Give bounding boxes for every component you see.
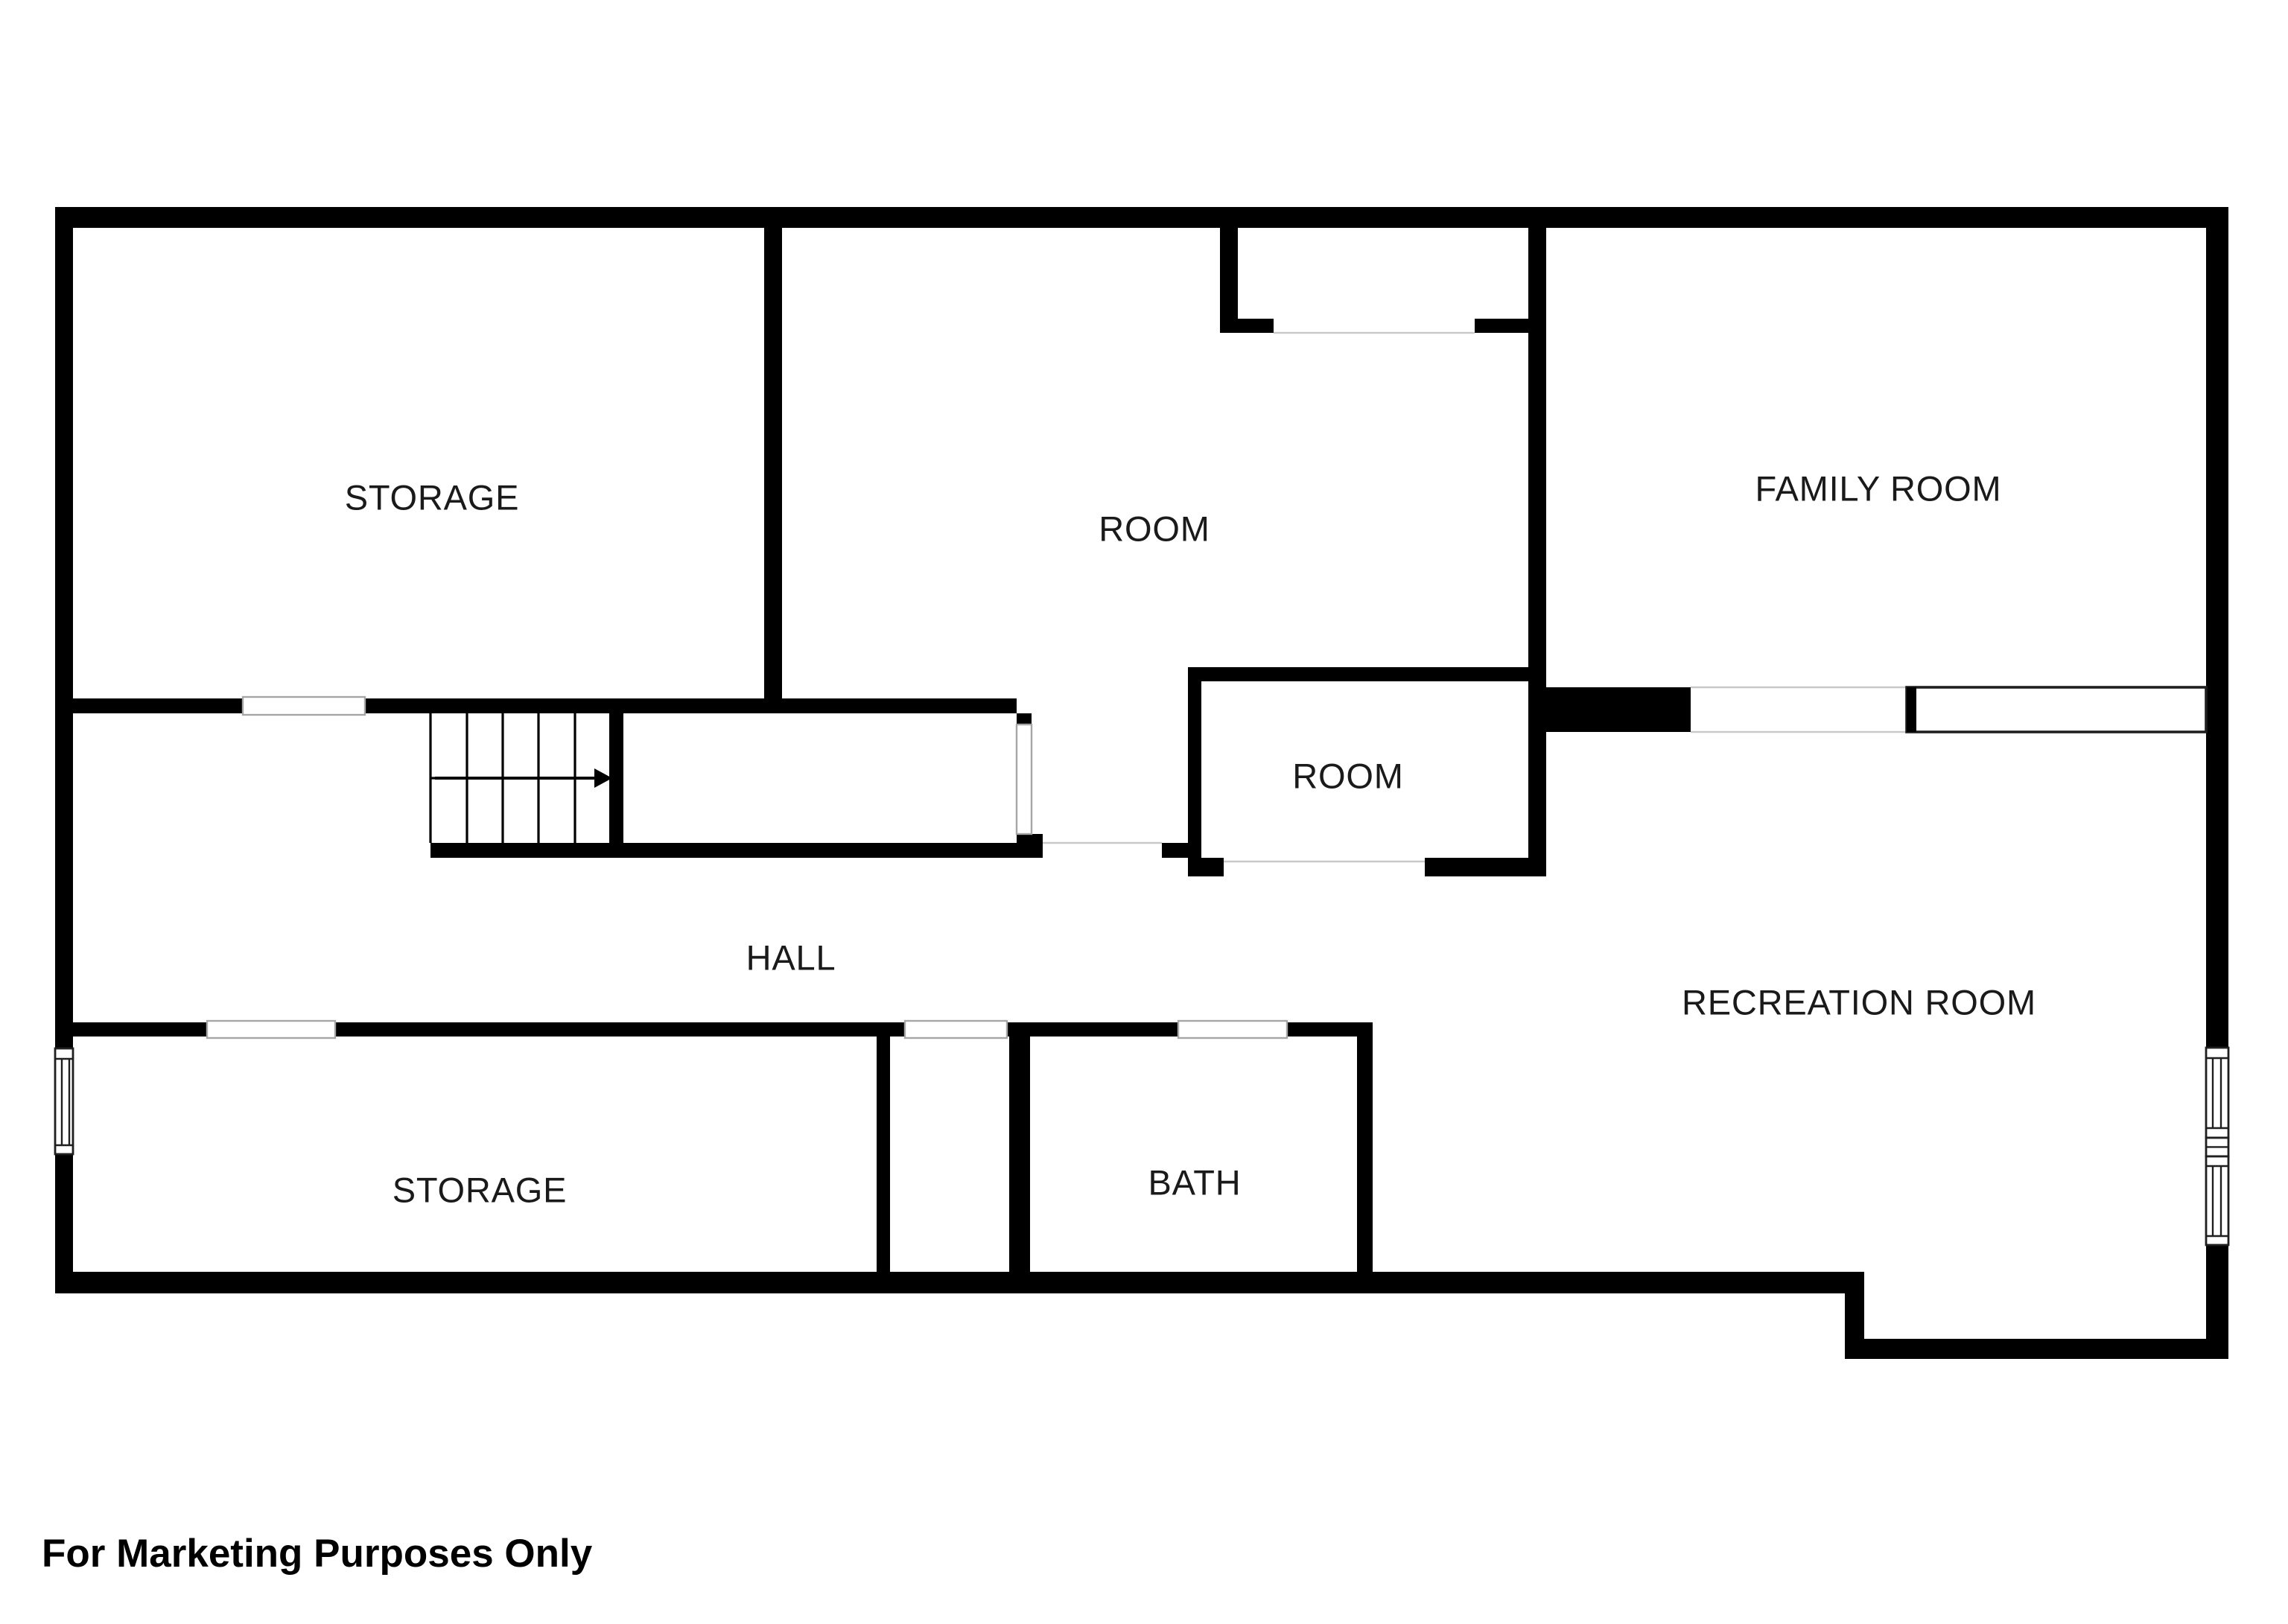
storage-top-door-opening: [243, 697, 365, 715]
room-label-storage-bottom: STORAGE: [393, 1170, 568, 1209]
family-room-window-strip-jamb: [1907, 687, 1916, 732]
outer-right-wall-upper-wall: [2206, 207, 2228, 1048]
bath-right-wall-wall: [1357, 1022, 1373, 1293]
room-label-family-room: FAMILY ROOM: [1755, 468, 2002, 508]
divider-room-family-wall: [1528, 228, 1546, 876]
closet-door-opening: [905, 1021, 1007, 1038]
room-label-storage-top: STORAGE: [345, 477, 520, 517]
corridor-jamb-top-stub-wall: [1017, 713, 1032, 725]
midroom-bottom-left-stub-wall: [1162, 843, 1188, 858]
room-label-room-middle: ROOM: [1292, 756, 1403, 795]
threshold-lines-layer: [1043, 333, 1907, 862]
mid-wall-left-segment-wall: [55, 698, 243, 713]
divider-storage-room-wall: [764, 228, 782, 713]
outer-top-wall-wall: [55, 207, 2228, 228]
vestibule-left-wall-wall: [1220, 228, 1238, 333]
left-window-icon: [55, 1048, 73, 1154]
floor-plan-page: STORAGEROOMFAMILY ROOMROOMHALLRECREATION…: [0, 0, 2288, 1624]
stairs-layer: [430, 713, 612, 843]
vestibule-bottom-left-stub-wall: [1220, 319, 1274, 333]
midroom-corner-block-wall: [1188, 858, 1224, 876]
midroom-left-wall-wall: [1188, 667, 1201, 876]
bath-left-wall-wall: [1009, 1022, 1030, 1293]
corridor-bottom-wall-wall: [430, 843, 1043, 858]
walls-layer: [55, 207, 2228, 1359]
room-label-room-top: ROOM: [1099, 509, 1210, 548]
door-openings-layer: [207, 697, 1287, 1038]
mid-wall-main-segment-wall: [365, 698, 1017, 713]
corridor-end-door-opening: [1017, 725, 1032, 834]
floor-plan-drawing: STORAGEROOMFAMILY ROOMROOMHALLRECREATION…: [0, 0, 2288, 1624]
family-room-beam-block-wall: [1546, 687, 1691, 732]
outer-bottom-wall-left-wall: [55, 1272, 1864, 1293]
storage-bottom-right-wall-wall: [877, 1022, 890, 1293]
hall-bottom-wall-seg3-wall: [1007, 1022, 1178, 1037]
right-window-lower-icon: [2206, 1156, 2228, 1245]
storage-bottom-door-opening: [207, 1021, 335, 1038]
midroom-top-wall-wall: [1188, 667, 1528, 681]
hall-bottom-wall-seg1-wall: [55, 1022, 207, 1037]
windows-layer: [55, 687, 2228, 1245]
outer-left-wall-upper-wall: [55, 207, 73, 1048]
right-window-upper-icon: [2206, 1048, 2228, 1138]
room-label-recreation-room: RECREATION ROOM: [1682, 982, 2036, 1022]
outer-bottom-wall-right-wall: [1845, 1339, 2228, 1359]
room-label-bath: BATH: [1148, 1162, 1241, 1202]
vestibule-bottom-right-stub-wall: [1475, 319, 1533, 333]
bath-door-opening: [1178, 1021, 1287, 1038]
midroom-bottom-segment-wall: [1425, 858, 1528, 876]
marketing-disclaimer-text: For Marketing Purposes Only: [42, 1532, 593, 1576]
family-room-window-strip-icon: [1907, 687, 2206, 732]
room-label-hall: HALL: [746, 937, 836, 977]
hall-bottom-wall-seg2-wall: [335, 1022, 905, 1037]
